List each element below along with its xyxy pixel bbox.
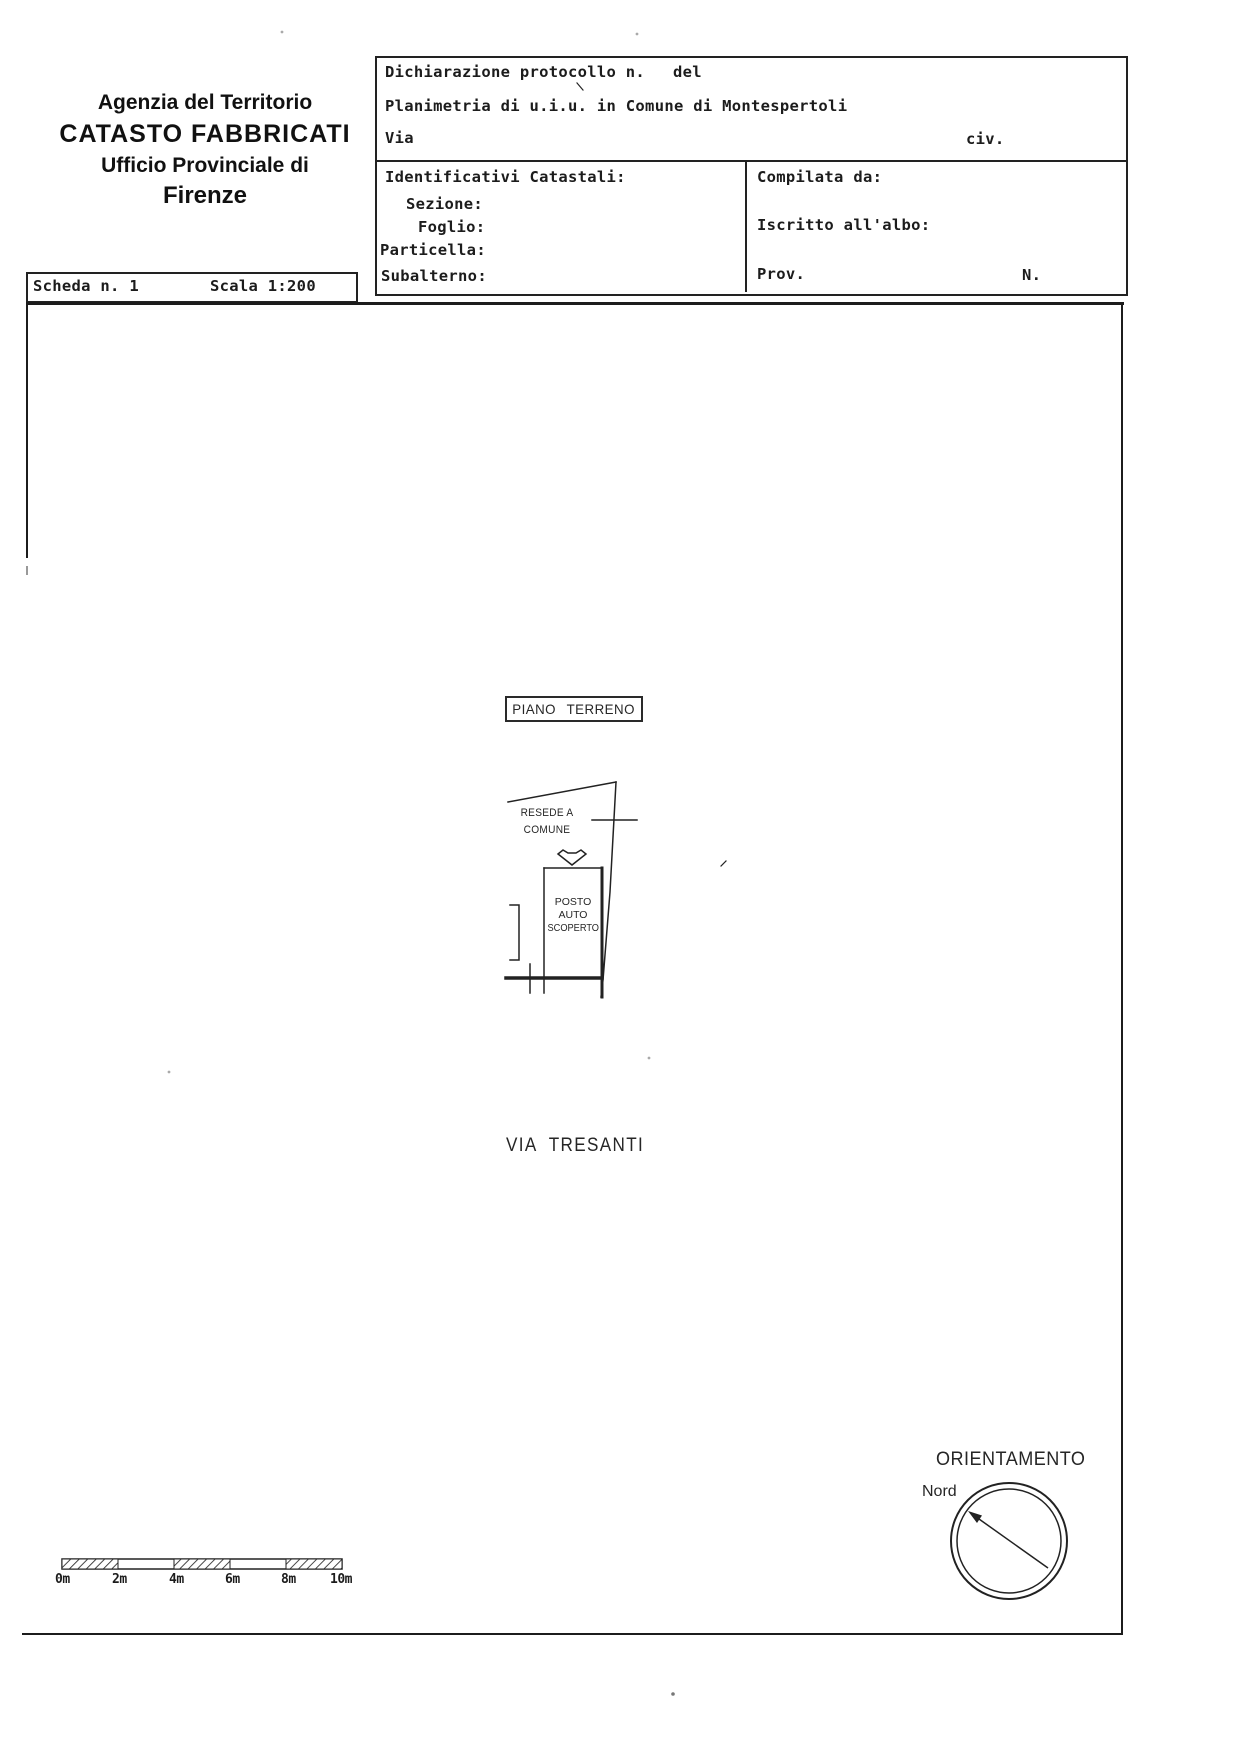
- posto-auto-line2: AUTO: [544, 909, 602, 921]
- planimetria-line: Planimetria di u.i.u. in Comune di Monte…: [385, 97, 847, 115]
- posto-auto-line3: SCOPERTO: [547, 922, 598, 934]
- cadastral-ids-title: Identificativi Catastali:: [385, 168, 626, 186]
- scalebar-label-2m: 2m: [112, 1572, 127, 1587]
- drawing-frame-left-dash: [26, 566, 28, 575]
- via-label: Via: [385, 129, 414, 147]
- floor-label: PIANO TERRENO: [513, 701, 636, 717]
- declaration-box-divider-v: [745, 162, 747, 292]
- drawing-frame-left: [26, 303, 28, 558]
- office-line: Ufficio Provinciale di: [50, 151, 360, 181]
- scalebar-label-10m: 10m: [330, 1572, 352, 1587]
- agency-heading: Agenzia del Territorio CATASTO FABBRICAT…: [50, 88, 360, 211]
- protocol-label: Dichiarazione protocollo n.: [385, 63, 645, 81]
- compilata-da-label: Compilata da:: [757, 168, 882, 186]
- province-name: Firenze: [50, 181, 360, 211]
- foglio-label: Foglio:: [418, 218, 485, 236]
- scale-ratio: Scala 1:200: [210, 277, 316, 295]
- subalterno-label: Subalterno:: [381, 267, 487, 285]
- compass-icon: [951, 1483, 1067, 1599]
- scalebar-label-0m: 0m: [55, 1572, 70, 1587]
- scalebar-label-4m: 4m: [169, 1572, 184, 1587]
- street-name-label: VIA TRESANTI: [506, 1135, 644, 1157]
- scalebar-label-6m: 6m: [225, 1572, 240, 1587]
- catasto-title: CATASTO FABBRICATI: [50, 118, 360, 151]
- prov-label: Prov.: [757, 265, 805, 283]
- posto-auto-line1: POSTO: [544, 896, 602, 908]
- n-label: N.: [1022, 266, 1041, 284]
- resede-label-line1: RESEDE A: [511, 807, 583, 819]
- particella-label: Particella:: [380, 241, 486, 259]
- north-label: Nord: [922, 1483, 957, 1501]
- orientation-title: ORIENTAMENTO: [936, 1449, 1085, 1471]
- cadastral-sheet-page: Agenzia del Territorio CATASTO FABBRICAT…: [0, 0, 1241, 1755]
- sezione-label: Sezione:: [406, 195, 483, 213]
- drawing-frame-top: [26, 302, 1124, 305]
- scale-bar: [62, 1559, 342, 1569]
- del-label: del: [673, 63, 702, 81]
- iscritto-albo-label: Iscritto all'albo:: [757, 216, 930, 234]
- agency-name: Agenzia del Territorio: [50, 88, 360, 118]
- civ-label: civ.: [966, 130, 1005, 148]
- scheda-number: Scheda n. 1: [33, 277, 139, 295]
- resede-label-line2: COMUNE: [511, 824, 583, 836]
- drawing-frame-right: [1121, 302, 1123, 1634]
- declaration-box-divider-h: [375, 160, 1126, 162]
- floor-label-box: PIANO TERRENO: [505, 696, 643, 722]
- scalebar-label-8m: 8m: [281, 1572, 296, 1587]
- entrance-arrow-icon: [558, 850, 586, 865]
- drawing-frame-bottom: [22, 1633, 1123, 1635]
